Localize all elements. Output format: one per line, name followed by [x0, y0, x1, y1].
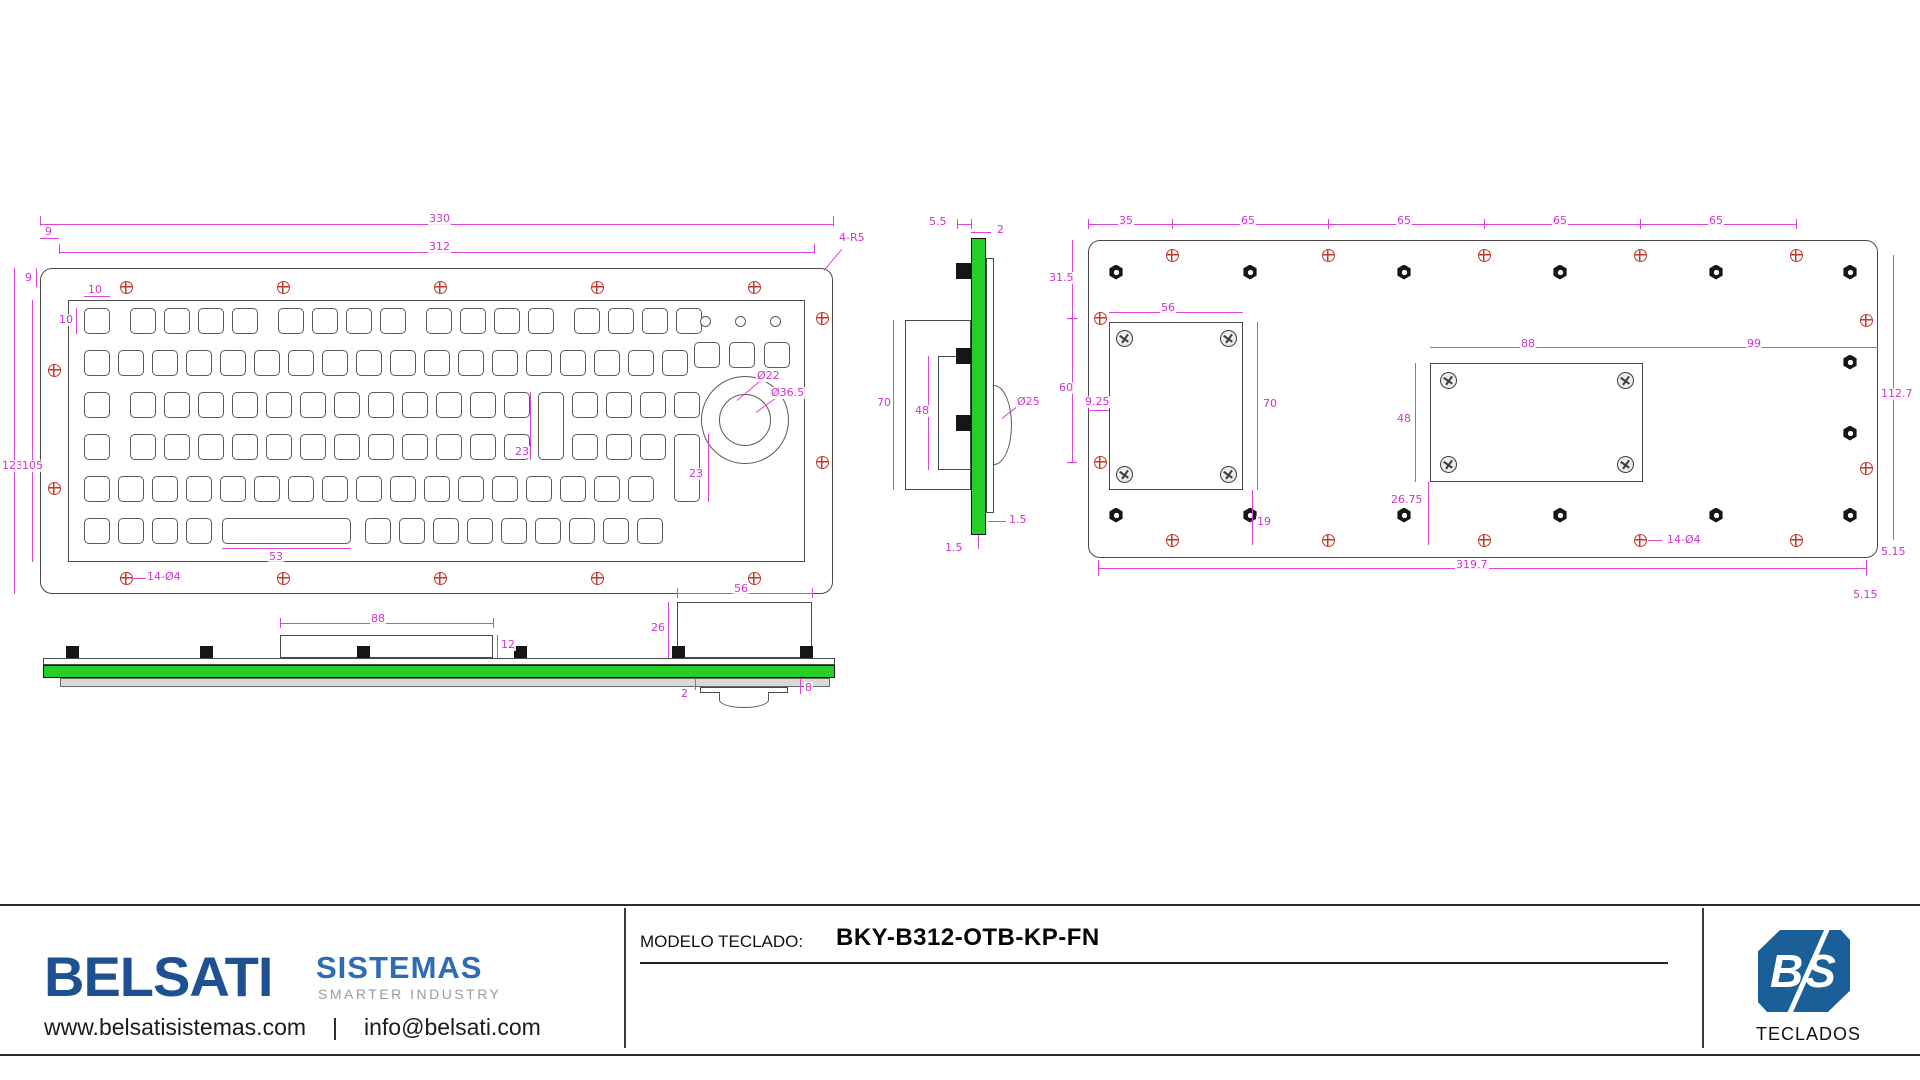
back-dimension-label: 26.75	[1390, 494, 1424, 506]
keyboard-key	[152, 518, 178, 544]
bottom-pcb-clip	[200, 646, 213, 658]
footer-bottom-divider	[0, 1054, 1920, 1056]
front-dimension-label: 14-Ø4	[146, 571, 182, 583]
back-dimension-label: 19	[1256, 516, 1272, 528]
keyboard-key	[254, 476, 280, 502]
bottom-trackball-dome	[719, 692, 769, 708]
keyboard-key	[198, 308, 224, 334]
back-dimension-line	[1484, 219, 1485, 229]
back-dimension-line	[1796, 219, 1797, 229]
side-dimension-line	[971, 232, 991, 233]
brand-logo-text: BELSATI	[44, 944, 272, 1009]
back-dimension-line	[1257, 322, 1258, 490]
keyboard-key	[152, 350, 178, 376]
keyboard-key	[334, 434, 360, 460]
brand-tagline: SMARTER INDUSTRY	[318, 986, 501, 1002]
keyboard-key	[164, 434, 190, 460]
keyboard-key	[164, 308, 190, 334]
led-indicator	[735, 316, 746, 327]
keyboard-key	[390, 476, 416, 502]
mounting-hole-icon	[1634, 534, 1647, 547]
mounting-hole-icon	[1094, 456, 1107, 469]
front-dimension-label: 53	[268, 551, 284, 563]
bottom-dimension-line	[280, 623, 493, 624]
keyboard-key	[560, 476, 586, 502]
back-dimension-line	[1428, 482, 1429, 545]
back-panel-outline	[1430, 363, 1643, 482]
bottom-dimension-line	[280, 618, 281, 628]
side-pcb-clip	[956, 348, 971, 364]
keyboard-key	[390, 350, 416, 376]
keyboard-key	[118, 350, 144, 376]
back-dimension-line	[1067, 462, 1077, 463]
bottom-pcb-board	[43, 665, 835, 678]
side-dimension-label: 70	[876, 397, 892, 409]
keyboard-key	[368, 392, 394, 418]
bottom-dimension-line	[668, 602, 669, 658]
keyboard-key	[402, 434, 428, 460]
keyboard-key	[232, 308, 258, 334]
front-leader-line	[824, 249, 843, 271]
keyboard-key	[118, 476, 144, 502]
front-dimension-label: 105	[21, 460, 44, 472]
keyboard-key	[594, 476, 620, 502]
keyboard-key	[608, 308, 634, 334]
back-dimension-label: 65	[1552, 215, 1568, 227]
keyboard-key	[433, 518, 459, 544]
side-panel-outline	[986, 258, 994, 513]
keyboard-key	[220, 476, 246, 502]
front-dimension-line	[814, 244, 815, 254]
bs-logo: BS	[1758, 930, 1850, 1012]
keyboard-key	[130, 308, 156, 334]
contact-line: www.belsatisistemas.com|info@belsati.com	[44, 1014, 541, 1041]
footer-divider-right	[1702, 908, 1704, 1048]
keyboard-key	[186, 350, 212, 376]
front-dimension-line	[76, 308, 77, 334]
front-dimension-label: 9	[24, 272, 33, 284]
keyboard-key	[640, 434, 666, 460]
keyboard-key	[460, 308, 486, 334]
keyboard-key	[640, 392, 666, 418]
keyboard-key	[572, 392, 598, 418]
keyboard-key	[334, 392, 360, 418]
keyboard-key	[84, 434, 110, 460]
side-pcb-clip	[956, 263, 971, 279]
bottom-pcb-clip	[672, 646, 685, 658]
keyboard-key	[424, 350, 450, 376]
back-dimension-line	[1640, 219, 1641, 229]
mounting-hole-icon	[1094, 312, 1107, 325]
mounting-hole-icon	[748, 281, 761, 294]
side-dimension-line	[971, 219, 972, 229]
keyboard-key	[152, 476, 178, 502]
keyboard-key	[198, 434, 224, 460]
mounting-hole-icon	[1478, 534, 1491, 547]
back-dimension-line	[1866, 560, 1867, 576]
back-dimension-label: 31.5	[1048, 272, 1075, 284]
keyboard-key	[300, 392, 326, 418]
keyboard-key	[300, 434, 326, 460]
keyboard-key	[266, 434, 292, 460]
front-dimension-line	[530, 392, 531, 460]
front-dimension-line	[222, 548, 351, 549]
front-dimension-label: 10	[58, 314, 74, 326]
keyboard-key	[346, 308, 372, 334]
keyboard-key	[538, 392, 564, 460]
back-dimension-line	[1088, 219, 1089, 229]
front-dimension-label: 10	[87, 284, 103, 296]
bottom-dimension-label: 56	[733, 583, 749, 595]
drawing-sheet: 33031299123105101023235314-Ø4Ø22Ø36.54-R…	[0, 0, 1920, 1080]
keyboard-key	[628, 476, 654, 502]
bottom-dimension-label: 88	[370, 613, 386, 625]
keyboard-key	[470, 392, 496, 418]
keyboard-key	[288, 476, 314, 502]
mounting-hole-icon	[1790, 534, 1803, 547]
side-dimension-line	[957, 219, 958, 229]
bottom-dimension-line	[800, 678, 801, 694]
front-dimension-line	[40, 216, 41, 226]
side-dimension-line	[988, 521, 1006, 522]
front-dimension-line	[59, 244, 60, 254]
bottom-dimension-line	[677, 588, 678, 598]
keyboard-key	[130, 392, 156, 418]
keyboard-key	[424, 476, 450, 502]
back-dimension-label: 70	[1262, 398, 1278, 410]
back-dimension-label: 14-Ø4	[1666, 534, 1702, 546]
keyboard-key	[526, 476, 552, 502]
mounting-hole-icon	[277, 572, 290, 585]
mounting-hole-icon	[434, 572, 447, 585]
keyboard-key	[399, 518, 425, 544]
bottom-panel-outline	[677, 602, 812, 658]
keyboard-key	[606, 392, 632, 418]
keyboard-key	[574, 308, 600, 334]
keyboard-key	[560, 350, 586, 376]
back-dimension-line	[1648, 540, 1662, 541]
keyboard-key	[458, 350, 484, 376]
keyboard-key	[501, 518, 527, 544]
front-dimension-line	[708, 434, 709, 502]
keyboard-key	[322, 350, 348, 376]
keyboard-key	[368, 434, 394, 460]
mounting-hole-icon	[434, 281, 447, 294]
keyboard-key	[642, 308, 668, 334]
keyboard-key	[436, 392, 462, 418]
keyboard-key	[494, 308, 520, 334]
back-dimension-line	[1098, 560, 1099, 576]
mounting-hole-icon	[1634, 249, 1647, 262]
footer-top-divider	[0, 904, 1920, 906]
back-dimension-label: 99	[1746, 338, 1762, 350]
trackball-button	[729, 342, 755, 368]
keyboard-key	[186, 476, 212, 502]
keyboard-key	[572, 434, 598, 460]
keyboard-key	[118, 518, 144, 544]
side-panel-outline	[938, 356, 971, 470]
keyboard-key	[606, 434, 632, 460]
keyboard-key	[312, 308, 338, 334]
side-dimension-label: 1.5	[944, 542, 964, 554]
led-indicator	[770, 316, 781, 327]
side-dimension-label: Ø25	[1016, 396, 1041, 408]
back-dimension-line	[1088, 224, 1796, 225]
keyboard-key	[356, 476, 382, 502]
keyboard-key	[436, 434, 462, 460]
keyboard-key	[569, 518, 595, 544]
keyboard-key	[492, 350, 518, 376]
email-text: info@belsati.com	[364, 1014, 541, 1040]
mounting-hole-icon	[816, 312, 829, 325]
keyboard-key	[674, 392, 700, 418]
front-dimension-label: 23	[514, 446, 530, 458]
back-dimension-line	[1252, 490, 1253, 545]
keyboard-key	[676, 308, 702, 334]
keyboard-key	[594, 350, 620, 376]
trackball-ring	[719, 394, 771, 446]
back-dimension-line	[1415, 363, 1416, 482]
front-dimension-label: 9	[44, 226, 53, 238]
mounting-hole-icon	[1860, 314, 1873, 327]
model-value: BKY-B312-OTB-KP-FN	[836, 924, 1100, 952]
mounting-hole-icon	[120, 572, 133, 585]
mounting-hole-icon	[1166, 534, 1179, 547]
back-dimension-label: 9.25	[1084, 396, 1111, 408]
keyboard-key	[186, 518, 212, 544]
front-dimension-line	[132, 578, 146, 579]
front-dimension-label: Ø36.5	[770, 387, 805, 399]
led-indicator	[700, 316, 711, 327]
keyboard-key	[662, 350, 688, 376]
keyboard-key	[402, 392, 428, 418]
back-dimension-line	[1088, 410, 1109, 411]
keyboard-key	[492, 476, 518, 502]
mounting-hole-icon	[591, 281, 604, 294]
front-dimension-line	[14, 268, 15, 594]
back-dimension-line	[1328, 219, 1329, 229]
bottom-pcb-clip	[66, 646, 79, 658]
footer-divider-left	[624, 908, 626, 1048]
keyboard-key	[278, 308, 304, 334]
keyboard-key	[84, 476, 110, 502]
keyboard-key	[84, 308, 110, 334]
back-dimension-label: 112.7	[1880, 388, 1914, 400]
front-dimension-line	[40, 238, 59, 239]
side-dimension-line	[893, 320, 894, 490]
back-dimension-label: 56	[1160, 302, 1176, 314]
front-dimension-label: 312	[428, 241, 451, 253]
back-dimension-label: 48	[1396, 413, 1412, 425]
back-dimension-label: 5.15	[1880, 546, 1907, 558]
keyboard-key	[426, 308, 452, 334]
mounting-hole-icon	[1478, 249, 1491, 262]
side-dimension-line	[978, 535, 979, 549]
brand-logo-subtext: SISTEMAS	[316, 950, 482, 986]
keyboard-key	[603, 518, 629, 544]
keyboard-key	[164, 392, 190, 418]
side-dimension-label: 1.5	[1008, 514, 1028, 526]
side-dimension-label: 5.5	[928, 216, 948, 228]
bottom-dimension-label: 26	[650, 622, 666, 634]
bottom-panel-outline	[280, 635, 493, 658]
back-dimension-label: 65	[1396, 215, 1412, 227]
front-dimension-line	[36, 268, 37, 287]
back-dimension-label: 60	[1058, 382, 1074, 394]
mounting-hole-icon	[816, 456, 829, 469]
front-dimension-label: 4-R5	[838, 232, 866, 244]
front-dimension-label: 330	[428, 213, 451, 225]
keyboard-key	[458, 476, 484, 502]
keyboard-key	[84, 350, 110, 376]
mounting-hole-icon	[48, 482, 61, 495]
back-dimension-label: 5.15	[1852, 589, 1879, 601]
back-dimension-line	[1172, 219, 1173, 229]
mounting-hole-icon	[1322, 534, 1335, 547]
side-dimension-label: 48	[914, 405, 930, 417]
bottom-dimension-label: 8	[804, 682, 813, 694]
keyboard-key	[380, 308, 406, 334]
back-dimension-label: 88	[1520, 338, 1536, 350]
keyboard-key	[84, 518, 110, 544]
front-dimension-label: Ø22	[756, 370, 781, 382]
keyboard-key	[637, 518, 663, 544]
front-dimension-line	[833, 216, 834, 226]
model-underline	[640, 962, 1668, 964]
bs-logo-text: BS	[1758, 930, 1850, 1012]
side-pcb-board	[971, 238, 986, 535]
mounting-hole-icon	[1322, 249, 1335, 262]
keyboard-key	[470, 434, 496, 460]
mounting-hole-icon	[1166, 249, 1179, 262]
model-label: MODELO TECLADO:	[640, 932, 803, 952]
keyboard-key	[130, 434, 156, 460]
keyboard-key	[467, 518, 493, 544]
back-dimension-line	[1109, 312, 1243, 313]
bs-logo-caption: TECLADOS	[1756, 1024, 1852, 1045]
front-dimension-label: 23	[688, 468, 704, 480]
front-dimension-line	[32, 300, 33, 562]
keyboard-key	[232, 392, 258, 418]
bottom-dimension-label: 12	[500, 639, 516, 651]
keyboard-key	[288, 350, 314, 376]
keyboard-key	[526, 350, 552, 376]
back-panel-outline	[1109, 322, 1243, 490]
bottom-dimension-line	[497, 635, 498, 658]
bottom-base-plate	[60, 678, 830, 687]
keyboard-key	[535, 518, 561, 544]
mounting-hole-icon	[591, 572, 604, 585]
side-dimension-label: 2	[996, 224, 1005, 236]
bottom-panel-outline	[43, 658, 835, 665]
website-text: www.belsatisistemas.com	[44, 1014, 306, 1040]
keyboard-key	[528, 308, 554, 334]
keyboard-key	[254, 350, 280, 376]
keyboard-key	[322, 476, 348, 502]
side-pcb-clip	[956, 415, 971, 431]
technical-drawing: 33031299123105101023235314-Ø4Ø22Ø36.54-R…	[0, 0, 1920, 905]
front-dimension-line	[84, 296, 110, 297]
keyboard-key	[266, 392, 292, 418]
mounting-hole-icon	[48, 364, 61, 377]
keyboard-key	[222, 518, 351, 544]
back-dimension-line	[1067, 318, 1077, 319]
keyboard-key	[356, 350, 382, 376]
back-dimension-label: 65	[1708, 215, 1724, 227]
mounting-hole-icon	[1860, 462, 1873, 475]
keyboard-key	[504, 392, 530, 418]
keyboard-key	[232, 434, 258, 460]
mounting-hole-icon	[120, 281, 133, 294]
bottom-dimension-line	[812, 588, 813, 598]
mounting-hole-icon	[277, 281, 290, 294]
back-dimension-label: 65	[1240, 215, 1256, 227]
keyboard-key	[628, 350, 654, 376]
bottom-dimension-line	[493, 618, 494, 628]
mounting-hole-icon	[748, 572, 761, 585]
back-dimension-label: 319.7	[1455, 559, 1489, 571]
trackball-button	[694, 342, 720, 368]
keyboard-key	[198, 392, 224, 418]
bottom-dimension-label: 2	[680, 688, 689, 700]
bottom-dimension-line	[695, 678, 696, 690]
side-dimension-line	[957, 224, 971, 225]
keyboard-key	[220, 350, 246, 376]
keyboard-key	[365, 518, 391, 544]
mounting-hole-icon	[1790, 249, 1803, 262]
keyboard-key	[84, 392, 110, 418]
trackball-button	[764, 342, 790, 368]
bottom-pcb-clip	[800, 646, 813, 658]
back-dimension-line	[1430, 347, 1878, 348]
bottom-pcb-clip	[357, 646, 370, 658]
side-trackball-dome	[994, 385, 1012, 465]
separator-pipe: |	[332, 1014, 338, 1040]
back-dimension-label: 35	[1118, 215, 1134, 227]
